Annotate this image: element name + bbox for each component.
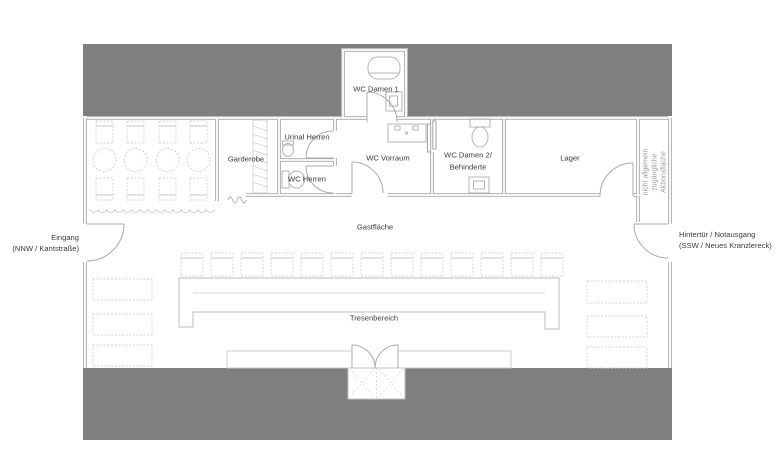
bench-left: [93, 279, 152, 366]
wc-damen-1-room: [341, 48, 408, 118]
entrance-annotation: Eingang (NNW / Kantstraße): [0, 232, 79, 254]
room-label-wc-damen-1: WC Damen 1: [353, 84, 399, 94]
room-label-wc-herren: WC Herren: [288, 174, 326, 184]
floor-plan: WC Damen 1 Urinal Herren Garderobe WC He…: [0, 0, 780, 469]
sliding-door: [428, 121, 437, 152]
restricted-area-annotation: nicht allgemein zugängliche Aktionsfläch…: [642, 149, 669, 196]
room-label-garderobe: Garderobe: [228, 154, 264, 164]
bar-stools: [181, 253, 563, 276]
bottom-counter: [227, 351, 511, 368]
floor-plan-drawing: [0, 0, 780, 469]
bench-right: [587, 281, 647, 368]
backdoor-annotation: Hintertür / Notausgang (SSW / Neues Kran…: [679, 229, 772, 251]
wc-vorraum-door: [352, 162, 383, 193]
room-label-tresenbereich: Tresenbereich: [350, 313, 398, 323]
vorraum-sink-fixture: [388, 124, 426, 142]
room-label-urinal-herren: Urinal Herren: [284, 132, 329, 142]
back-door: [634, 224, 668, 258]
curtain-line: [90, 209, 215, 212]
room-label-wc-vorraum: WC Vorraum: [366, 153, 409, 163]
lager-door: [600, 163, 633, 196]
room-label-wc-damen-2: WC Damen 2/ Behinderte: [444, 150, 492, 173]
dining-tables: [93, 121, 210, 200]
garderobe-curtain-icon: [228, 197, 246, 203]
double-entry-door: [352, 345, 398, 368]
room-label-lager: Lager: [560, 153, 579, 163]
entrance-door: [87, 224, 124, 261]
entry-vestibule: [348, 368, 405, 399]
room-label-gastflaeche: Gastfläche: [357, 222, 393, 232]
urinal-fixture: [283, 141, 294, 157]
